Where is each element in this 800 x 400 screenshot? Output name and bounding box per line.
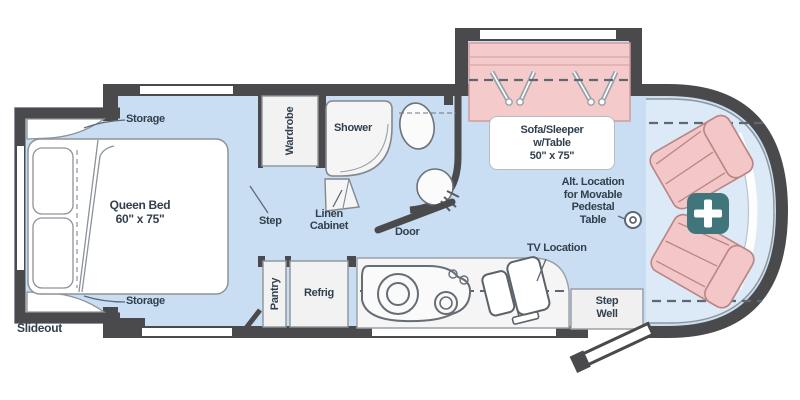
storage-top-label: Storage: [126, 113, 165, 125]
pantry-label: Pantry: [269, 278, 281, 310]
slideout-label: Slideout: [17, 321, 62, 335]
window: [480, 30, 616, 39]
sofa-sleeper: [469, 43, 630, 121]
window: [140, 86, 233, 94]
window: [17, 146, 24, 270]
refrig-label: Refrig: [291, 287, 347, 299]
window: [142, 328, 232, 336]
tv-location-label: TV Location: [527, 242, 587, 254]
window: [372, 328, 556, 336]
pillow: [33, 148, 73, 214]
storage-bottom-label: Storage: [126, 295, 165, 307]
step-label: Step: [259, 215, 282, 227]
shower-label: Shower: [334, 122, 372, 134]
alt-location-label: Alt. Location for Movable Pedestal Table: [545, 176, 641, 226]
plus-icon: [687, 193, 729, 234]
pillow: [33, 218, 73, 288]
step-well-label: Step Well: [571, 295, 643, 321]
bath-vent: [444, 94, 453, 105]
sofa-sleeper-label: Sofa/Sleeper w/Table 50" x 75": [489, 116, 615, 170]
linen-cabinet-label: Linen Cabinet: [300, 208, 358, 232]
wardrobe-label: Wardrobe: [284, 107, 296, 156]
queen-bed-label: Queen Bed 60" x 75": [80, 198, 200, 226]
rv-floorplan: Storage Storage Queen Bed 60" x 75" Slid…: [0, 0, 800, 400]
door-label: Door: [395, 226, 419, 238]
